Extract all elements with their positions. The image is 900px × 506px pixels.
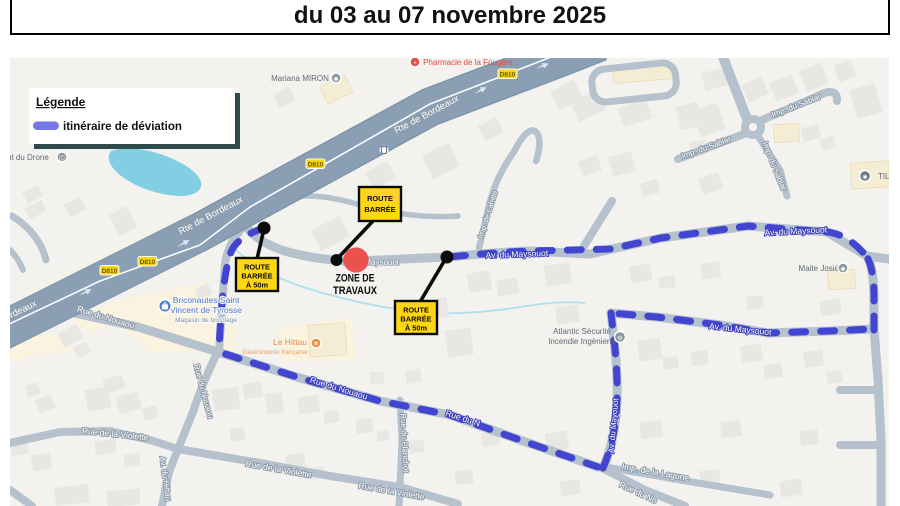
svg-text:◍: ◍ <box>617 336 622 342</box>
svg-text:À 50m: À 50m <box>405 324 428 333</box>
svg-text:◉: ◉ <box>840 267 845 273</box>
svg-text:ROUTE: ROUTE <box>367 194 393 203</box>
svg-text:Le Hittau: Le Hittau <box>273 337 307 347</box>
svg-text:itinéraire de déviation: itinéraire de déviation <box>63 121 182 133</box>
svg-text:D810: D810 <box>140 259 156 266</box>
svg-text:D810: D810 <box>102 268 118 275</box>
svg-text:◫: ◫ <box>59 156 65 162</box>
svg-text:TRAVAUX: TRAVAUX <box>333 285 378 297</box>
svg-text:Atlantic Sécurité: Atlantic Sécurité <box>553 327 611 336</box>
svg-text:ROUTE: ROUTE <box>403 306 429 315</box>
svg-text:BARRÉE: BARRÉE <box>241 272 272 281</box>
svg-text:Mariana MIRON: Mariana MIRON <box>271 74 329 83</box>
svg-text:◉: ◉ <box>333 77 338 83</box>
svg-text:TIL: TIL <box>878 172 889 181</box>
svg-text:✻: ✻ <box>313 341 318 348</box>
svg-text:ut du Drone: ut du Drone <box>10 153 49 162</box>
svg-text:D810: D810 <box>308 162 324 169</box>
svg-text:Pharmacie de la Fougère: Pharmacie de la Fougère <box>423 58 513 67</box>
svg-text:Incendie Ingènierie: Incendie Ingènierie <box>548 337 616 346</box>
svg-text:BARRÉE: BARRÉE <box>364 205 395 214</box>
svg-text:ZONE DE: ZONE DE <box>336 273 375 285</box>
svg-text:+: + <box>413 61 417 67</box>
svg-text:◉: ◉ <box>862 175 867 181</box>
svg-text:Magasin de bricolage: Magasin de bricolage <box>175 317 237 324</box>
svg-text:Briconautes Saint: Briconautes Saint <box>173 295 240 305</box>
svg-text:Légende: Légende <box>36 95 86 109</box>
svg-text:Vincent de Tyrosse: Vincent de Tyrosse <box>170 305 242 315</box>
svg-text:D810: D810 <box>500 72 516 79</box>
svg-text:ROUTE: ROUTE <box>244 263 270 272</box>
svg-text:Gastronomie française: Gastronomie française <box>242 349 308 356</box>
svg-text:Maite Josié: Maite Josié <box>799 264 840 273</box>
svg-text:BARRÉE: BARRÉE <box>400 315 431 324</box>
svg-text:À 50m: À 50m <box>246 281 269 290</box>
